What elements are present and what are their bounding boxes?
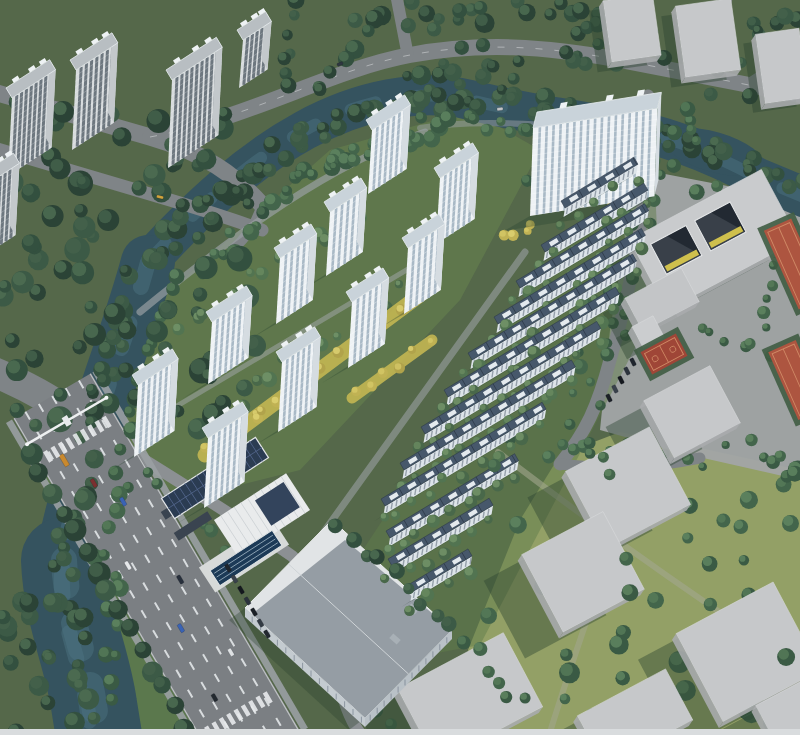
aerial-rendering-page: [0, 0, 800, 735]
bottom-margin-strip: [0, 729, 800, 735]
context-building: [589, 0, 661, 72]
context-building: [661, 0, 740, 88]
context-building: [743, 28, 800, 112]
aerial-site-rendering: [0, 0, 800, 735]
car: [497, 107, 503, 111]
